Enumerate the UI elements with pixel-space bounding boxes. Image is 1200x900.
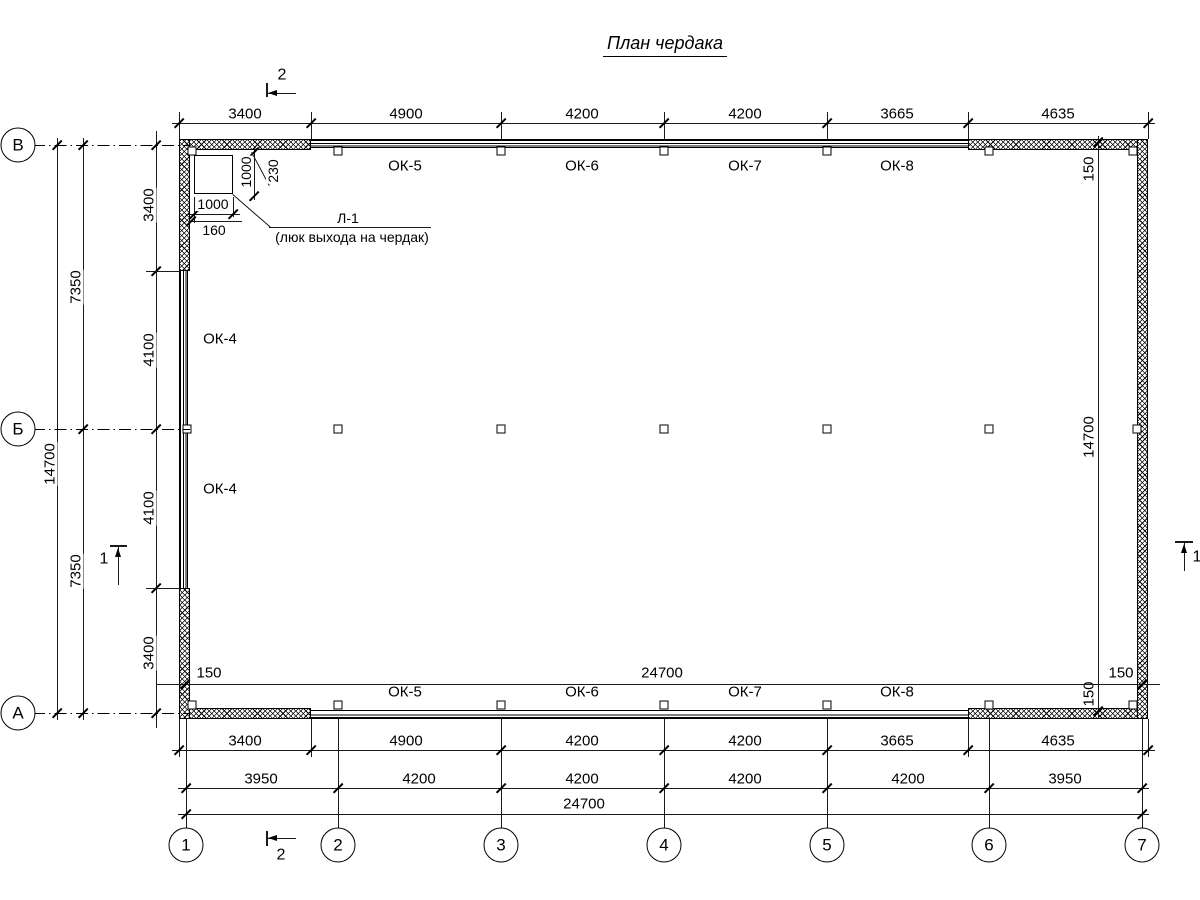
dim-label: 4200 (727, 734, 762, 749)
column (188, 701, 197, 710)
dim-label: 4200 (401, 772, 436, 787)
dim-label: 3400 (227, 107, 262, 122)
column (823, 147, 832, 156)
dim-label: 4100 (142, 332, 157, 367)
column (497, 425, 506, 434)
dim-label: 4200 (727, 772, 762, 787)
window-label: ОК-5 (387, 685, 423, 700)
axis-line-col (989, 719, 990, 828)
dim-line-right (1098, 136, 1099, 719)
axis-line-col (827, 719, 828, 828)
column (823, 701, 832, 710)
section-label: 2 (276, 848, 287, 863)
column (1129, 147, 1138, 156)
window-label: ОК-4 (202, 482, 238, 497)
window-strip-bottom (311, 710, 968, 719)
axis-col-bubble: 4 (647, 828, 682, 863)
attic-hatch-opening (194, 155, 233, 194)
dim-label: 150 (1107, 666, 1134, 681)
window-label: ОК-6 (564, 159, 600, 174)
dim-label: 4900 (388, 734, 423, 749)
axis-col-bubble: 5 (810, 828, 845, 863)
drawing-title: План чердака (603, 33, 727, 57)
dim-label: 3665 (879, 107, 914, 122)
axis-line-col (338, 719, 339, 828)
dim-label: 24700 (640, 666, 684, 681)
dim-label: 4635 (1040, 107, 1075, 122)
window-label: ОК-8 (879, 159, 915, 174)
column (660, 425, 669, 434)
axis-line-col (501, 719, 502, 828)
dim-label: 4200 (564, 772, 599, 787)
section-label: 1 (99, 552, 110, 567)
section-label: 2 (277, 68, 288, 83)
axis-line-col (664, 719, 665, 828)
dim-line (254, 146, 255, 200)
column (497, 147, 506, 156)
extension-line (311, 719, 312, 757)
axis-col-bubble: 2 (321, 828, 356, 863)
dim-label: 1000 (239, 155, 253, 188)
dim-label: 3400 (227, 734, 262, 749)
extension-line (311, 112, 312, 139)
dim-label: 3950 (243, 772, 278, 787)
wall-left-top (179, 139, 190, 271)
extension-line (146, 588, 180, 589)
column (497, 701, 506, 710)
dim-label: 150 (1082, 155, 1097, 182)
dim-label: 3400 (142, 187, 157, 222)
column (1133, 425, 1142, 434)
dim-label: 3950 (1047, 772, 1082, 787)
column (660, 147, 669, 156)
dim-line-bottom-3 (178, 814, 1149, 815)
axis-row-bubble: А (1, 696, 36, 731)
axis-line-B (33, 145, 190, 146)
column (334, 425, 343, 434)
section-arrow-left (268, 90, 277, 96)
dim-label: 4900 (388, 107, 423, 122)
dim-label: 230 (266, 158, 280, 183)
dim-label: 3665 (879, 734, 914, 749)
dim-line-interior (157, 684, 1160, 685)
section-label: 1 (1192, 550, 1200, 565)
window-strip-top (311, 139, 968, 148)
axis-row-bubble: Б (1, 412, 36, 447)
window-label: ОК-7 (727, 159, 763, 174)
column (334, 701, 343, 710)
dim-label: 3400 (142, 635, 157, 670)
dim-label: 24700 (562, 797, 606, 812)
dim-label: 160 (201, 223, 226, 237)
column (823, 425, 832, 434)
dim-label: 4635 (1040, 734, 1075, 749)
dim-label: 4200 (564, 734, 599, 749)
axis-col-bubble: 6 (972, 828, 1007, 863)
window-label: ОК-5 (387, 159, 423, 174)
axis-line-A (33, 713, 190, 714)
window-label: ОК-4 (202, 332, 238, 347)
dim-label: 7350 (69, 553, 84, 588)
extension-line (501, 112, 502, 139)
axis-line-Bb (33, 429, 190, 430)
extension-line (146, 271, 180, 272)
extension-line (827, 112, 828, 139)
axis-col-bubble: 7 (1125, 828, 1160, 863)
dim-label: 150 (195, 666, 222, 681)
dim-label: 14700 (1082, 415, 1097, 459)
column (985, 701, 994, 710)
column (985, 147, 994, 156)
dim-label: 1000 (196, 197, 229, 211)
extension-line (664, 112, 665, 139)
extension-line (1148, 719, 1149, 757)
wall-top-right (968, 139, 1148, 150)
dim-label: 4200 (564, 107, 599, 122)
window-label: ОК-7 (727, 685, 763, 700)
extension-line (1148, 112, 1149, 139)
column (1129, 701, 1138, 710)
wall-bottom-right (968, 708, 1148, 719)
extension-line (179, 112, 180, 139)
axis-col-bubble: 1 (169, 828, 204, 863)
column (660, 701, 669, 710)
wall-top-left (179, 139, 311, 150)
extension-line (194, 197, 195, 223)
axis-row-bubble: В (1, 128, 36, 163)
axis-col-bubble: 3 (484, 828, 519, 863)
column (985, 425, 994, 434)
wall-bottom-left (179, 708, 311, 719)
wall-left-bottom (179, 588, 190, 719)
hatch-door-sublabel: (люк выхода на чердак) (274, 230, 430, 244)
dim-label: 7350 (69, 269, 84, 304)
extension-line (968, 719, 969, 757)
attic-plan-drawing: План чердака 3400 4900 4200 4200 (0, 0, 1200, 900)
dim-label: 14700 (43, 442, 58, 486)
section-arrow-up (1181, 544, 1187, 553)
window-label: ОК-8 (879, 685, 915, 700)
dim-label: 4100 (142, 490, 157, 525)
dim-label: 4200 (890, 772, 925, 787)
column (334, 147, 343, 156)
dim-label: 4200 (727, 107, 762, 122)
extension-line (968, 112, 969, 139)
section-arrow-left (268, 835, 277, 841)
leader-line (269, 227, 431, 228)
extension-line (179, 719, 180, 757)
section-arrow-up (115, 548, 121, 557)
window-label: ОК-6 (564, 685, 600, 700)
hatch-door-label: Л-1 (336, 211, 360, 225)
